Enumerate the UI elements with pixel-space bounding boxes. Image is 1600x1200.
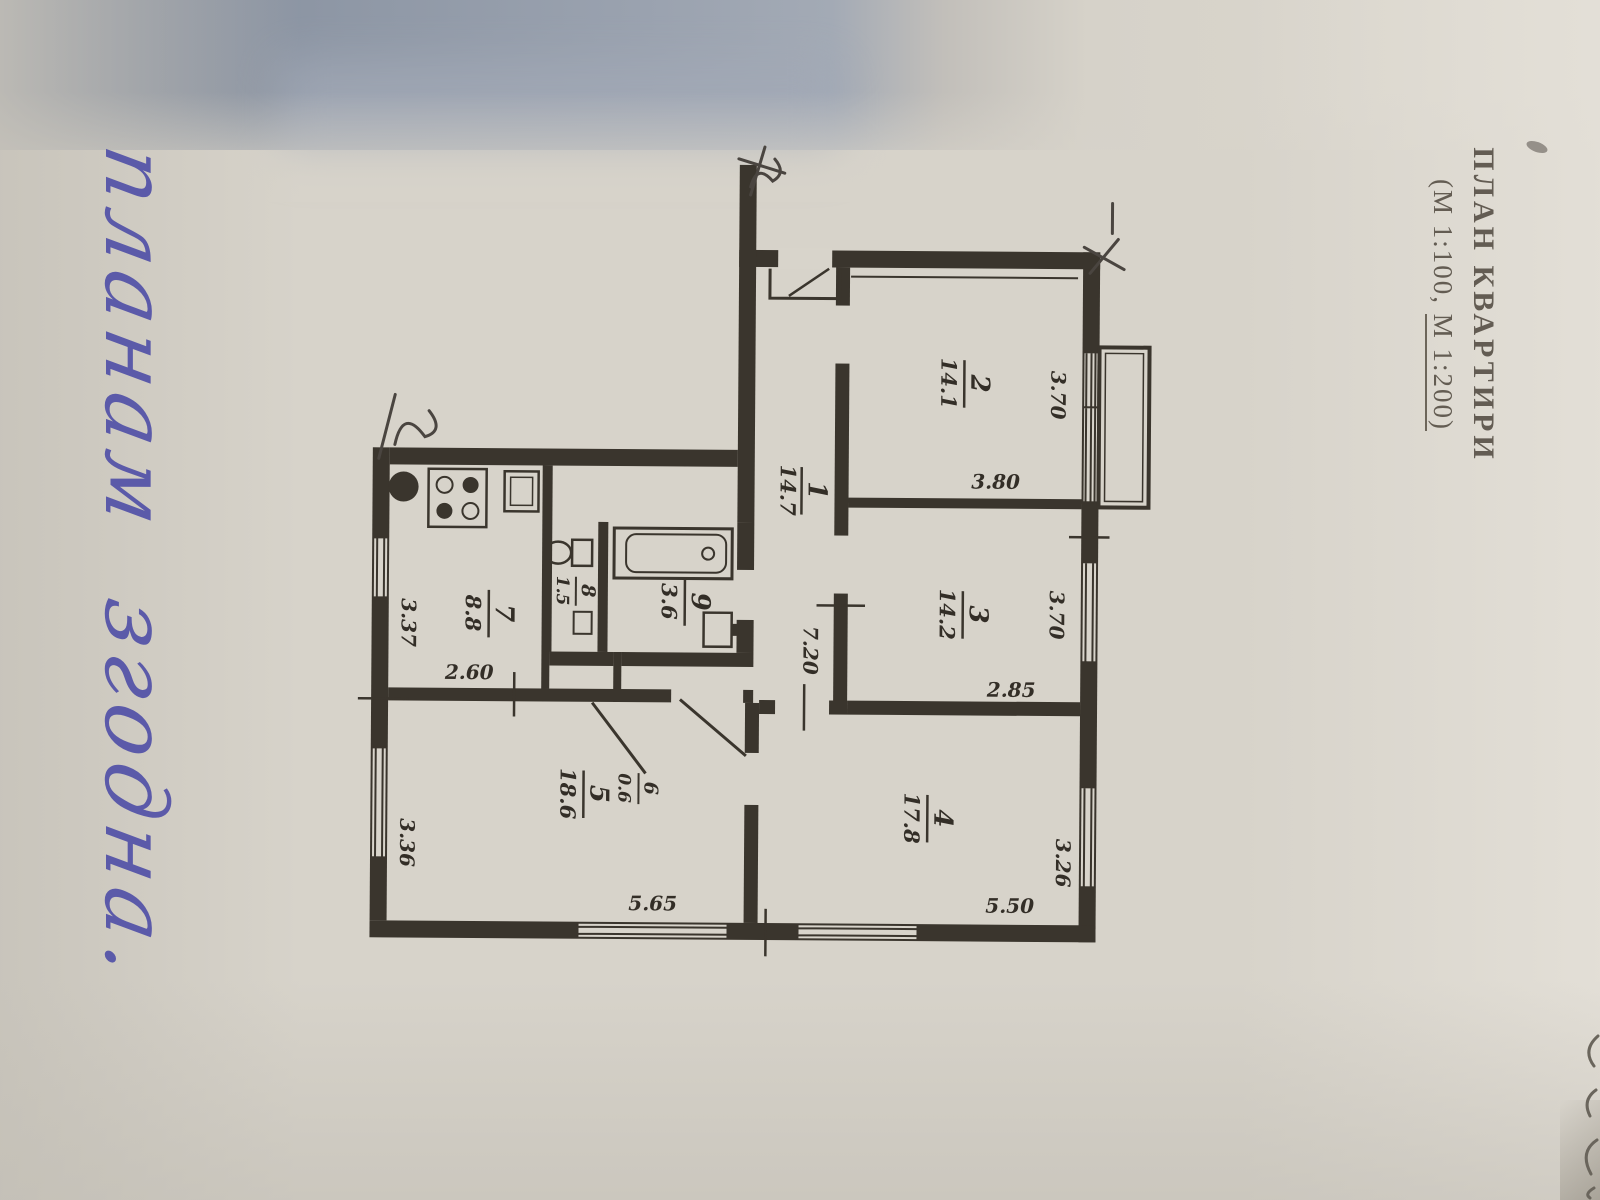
stove-icon bbox=[428, 469, 486, 527]
edge-pen-marks bbox=[1572, 1030, 1600, 1200]
svg-text:1: 1 bbox=[802, 481, 832, 499]
svg-text:7: 7 bbox=[489, 604, 519, 622]
room-label-3: 3 14.2 bbox=[935, 589, 993, 641]
interior-walls bbox=[387, 264, 1084, 925]
closet-leader-line bbox=[593, 704, 645, 772]
kitchen-sink-icon bbox=[504, 471, 538, 511]
svg-text:3.6: 3.6 bbox=[657, 583, 682, 620]
dim-room2-width: 3.70 bbox=[1046, 371, 1070, 420]
document-title-block: ПЛАН КВАРТИРИ (М 1:100, М 1:200) bbox=[1400, 110, 1500, 500]
dim-room5-width: 3.36 bbox=[395, 818, 419, 867]
dim-room4-width: 3.26 bbox=[1051, 839, 1075, 888]
windows bbox=[371, 245, 1098, 940]
entry-door-opening bbox=[778, 248, 832, 269]
scale-text-part1: (М 1:100, bbox=[1428, 179, 1458, 305]
svg-text:0.6: 0.6 bbox=[613, 773, 633, 803]
dim-room3-height: 2.85 bbox=[986, 678, 1036, 702]
photographed-floor-plan-page: ПЛАН КВАРТИРИ (М 1:100, М 1:200) планамз… bbox=[0, 0, 1600, 1200]
svg-text:1.5: 1.5 bbox=[552, 576, 572, 606]
dim-room3-width: 3.70 bbox=[1045, 591, 1069, 640]
entry-vestibule bbox=[770, 269, 840, 298]
document-title: ПЛАН КВАРТИРИ bbox=[1466, 110, 1500, 500]
bathroom-sink-icon bbox=[703, 613, 738, 647]
svg-text:14.2: 14.2 bbox=[935, 589, 960, 640]
room-label-5: 5 18.6 bbox=[555, 768, 613, 820]
dim-kitchen-width: 3.37 bbox=[396, 598, 420, 647]
dim-room5-height: 5.65 bbox=[628, 891, 677, 915]
room-label-1: 1 14.7 bbox=[775, 465, 831, 517]
balcony bbox=[1098, 347, 1149, 507]
handwritten-note-block: планамзгодна. bbox=[55, 90, 185, 1040]
room-label-2: 2 14.1 bbox=[936, 358, 994, 410]
door-swing-lines bbox=[593, 700, 745, 773]
room-label-6: 6 0.6 bbox=[613, 773, 661, 803]
exterior-walls bbox=[369, 162, 1100, 942]
svg-text:9: 9 bbox=[685, 592, 715, 610]
flue-icon bbox=[388, 471, 418, 501]
bathtub-icon bbox=[614, 528, 732, 579]
room-label-9: 9 3.6 bbox=[657, 579, 715, 624]
floor-plan-rotated-container: 1 14.7 2 14.1 3 14.2 4 17.8 5 18.6 6 0.6 bbox=[352, 142, 1163, 1003]
handwritten-note: планамзгодна. bbox=[85, 139, 185, 990]
svg-text:3: 3 bbox=[963, 605, 993, 623]
handwriting-word-1: планам bbox=[85, 139, 185, 539]
room-label-8: 8 1.5 bbox=[552, 576, 599, 606]
svg-text:17.8: 17.8 bbox=[899, 792, 924, 844]
dim-kitchen-height: 2.60 bbox=[444, 660, 494, 684]
room-label-4: 4 17.8 bbox=[899, 792, 957, 844]
handwriting-word-2: згодна. bbox=[85, 592, 185, 991]
svg-text:6: 6 bbox=[639, 782, 661, 795]
dim-room2-height: 3.80 bbox=[971, 469, 1020, 493]
svg-text:14.7: 14.7 bbox=[775, 465, 800, 517]
room-label-7: 7 8.8 bbox=[461, 591, 519, 636]
document-scale-note: (М 1:100, М 1:200) bbox=[1427, 110, 1458, 500]
floor-plan-svg: 1 14.7 2 14.1 3 14.2 4 17.8 5 18.6 6 0.6 bbox=[352, 142, 1163, 1003]
svg-text:14.1: 14.1 bbox=[936, 358, 961, 409]
scale-text-part2: М 1:200) bbox=[1425, 314, 1458, 431]
photo-bottom-shading bbox=[0, 980, 1600, 1200]
svg-text:2: 2 bbox=[964, 373, 994, 392]
svg-text:5: 5 bbox=[583, 785, 613, 803]
svg-text:4: 4 bbox=[927, 809, 957, 827]
dim-room4-height: 5.50 bbox=[985, 894, 1034, 918]
dim-hall-length: 7.20 bbox=[798, 626, 822, 675]
svg-text:18.6: 18.6 bbox=[555, 768, 580, 820]
svg-text:8.8: 8.8 bbox=[461, 594, 486, 632]
svg-text:8: 8 bbox=[577, 583, 599, 597]
